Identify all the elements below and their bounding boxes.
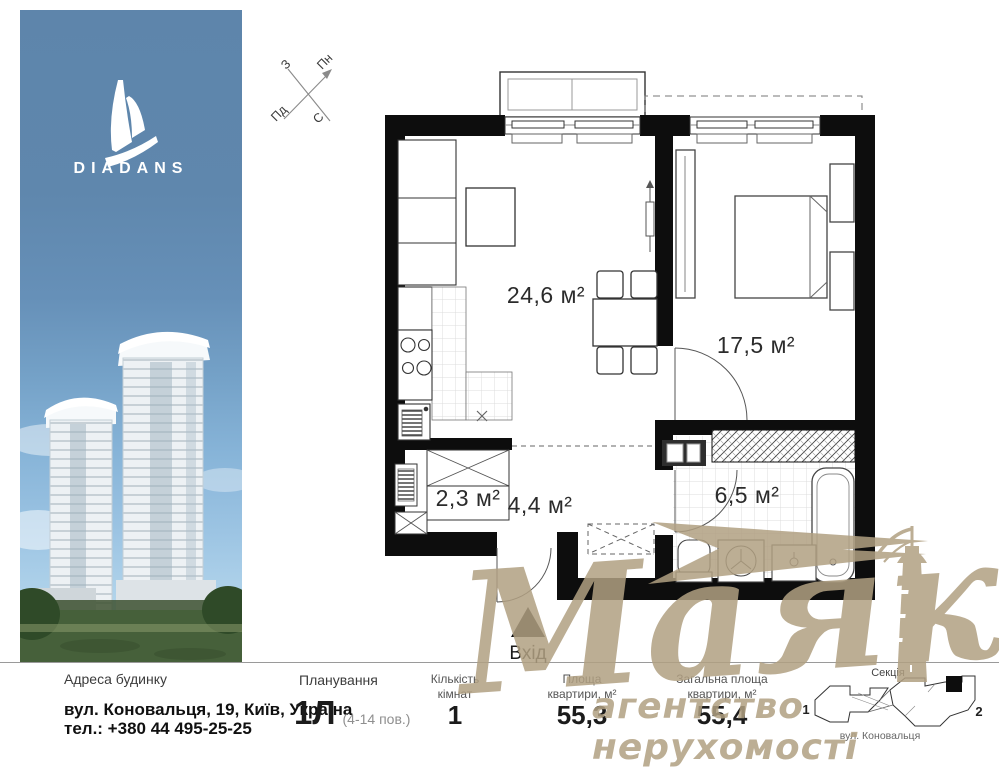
section-number-right: 2 <box>975 704 982 719</box>
room-label-closet: 2,3 м² <box>436 485 501 511</box>
window-bedroom <box>690 117 820 134</box>
room-label-hall: 4,4 м² <box>508 492 573 518</box>
room-label-bedroom: 17,5 м² <box>717 332 795 358</box>
room-label-bath: 6,5 м² <box>715 482 780 508</box>
compass-west-label: З <box>278 57 293 72</box>
entrance-arrow-icon <box>511 607 545 637</box>
compass-rose <box>284 69 332 121</box>
compass-south-label: Пд <box>268 102 290 124</box>
kitchen-units <box>398 140 512 440</box>
window-living <box>505 117 640 134</box>
balcony <box>500 72 645 117</box>
section-street-label: вул. Коновальця <box>840 730 921 742</box>
entrance-label: Вхід <box>509 643 546 664</box>
flyer-page: DIADANS Пн З С <box>0 0 999 770</box>
living-furniture <box>466 188 657 374</box>
section-plan-label: Секція <box>871 667 905 679</box>
section-plan <box>815 676 975 726</box>
floor-plan: Пн З С Пд <box>0 0 999 770</box>
dashed-balcony-outline <box>645 96 862 112</box>
bedroom-furniture <box>676 150 854 310</box>
entrance-door <box>497 548 551 602</box>
bedroom-door <box>675 348 747 420</box>
room-label-living: 24,6 м² <box>507 282 585 308</box>
compass-east-label: С <box>310 110 326 126</box>
compass-north-label: Пн <box>314 51 335 72</box>
section-number-left: 1 <box>802 702 809 717</box>
